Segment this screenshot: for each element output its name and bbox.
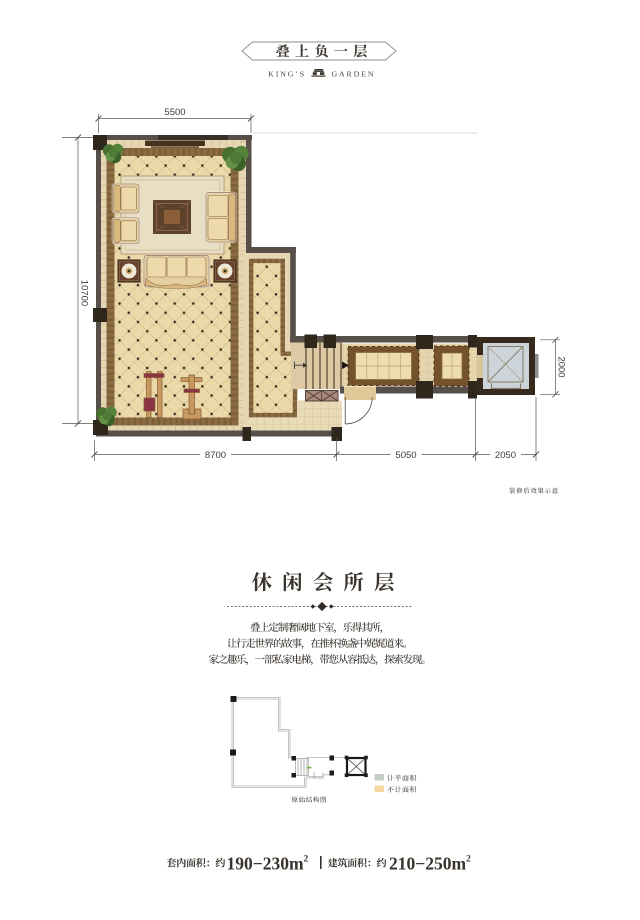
svg-text:2: 2 <box>466 855 471 865</box>
svg-text:GARDEN: GARDEN <box>332 70 376 79</box>
svg-text:5500: 5500 <box>164 107 185 118</box>
svg-text:2000: 2000 <box>555 356 566 377</box>
svg-text:KING’S: KING’S <box>268 70 306 79</box>
svg-text:2: 2 <box>304 855 309 865</box>
svg-text:2050: 2050 <box>495 450 516 461</box>
svg-text:190−230m: 190−230m <box>227 854 304 874</box>
svg-text:210−250m: 210−250m <box>389 854 466 874</box>
svg-text:8700: 8700 <box>205 450 226 461</box>
svg-text:5050: 5050 <box>395 450 416 461</box>
svg-text:10700: 10700 <box>78 280 89 306</box>
